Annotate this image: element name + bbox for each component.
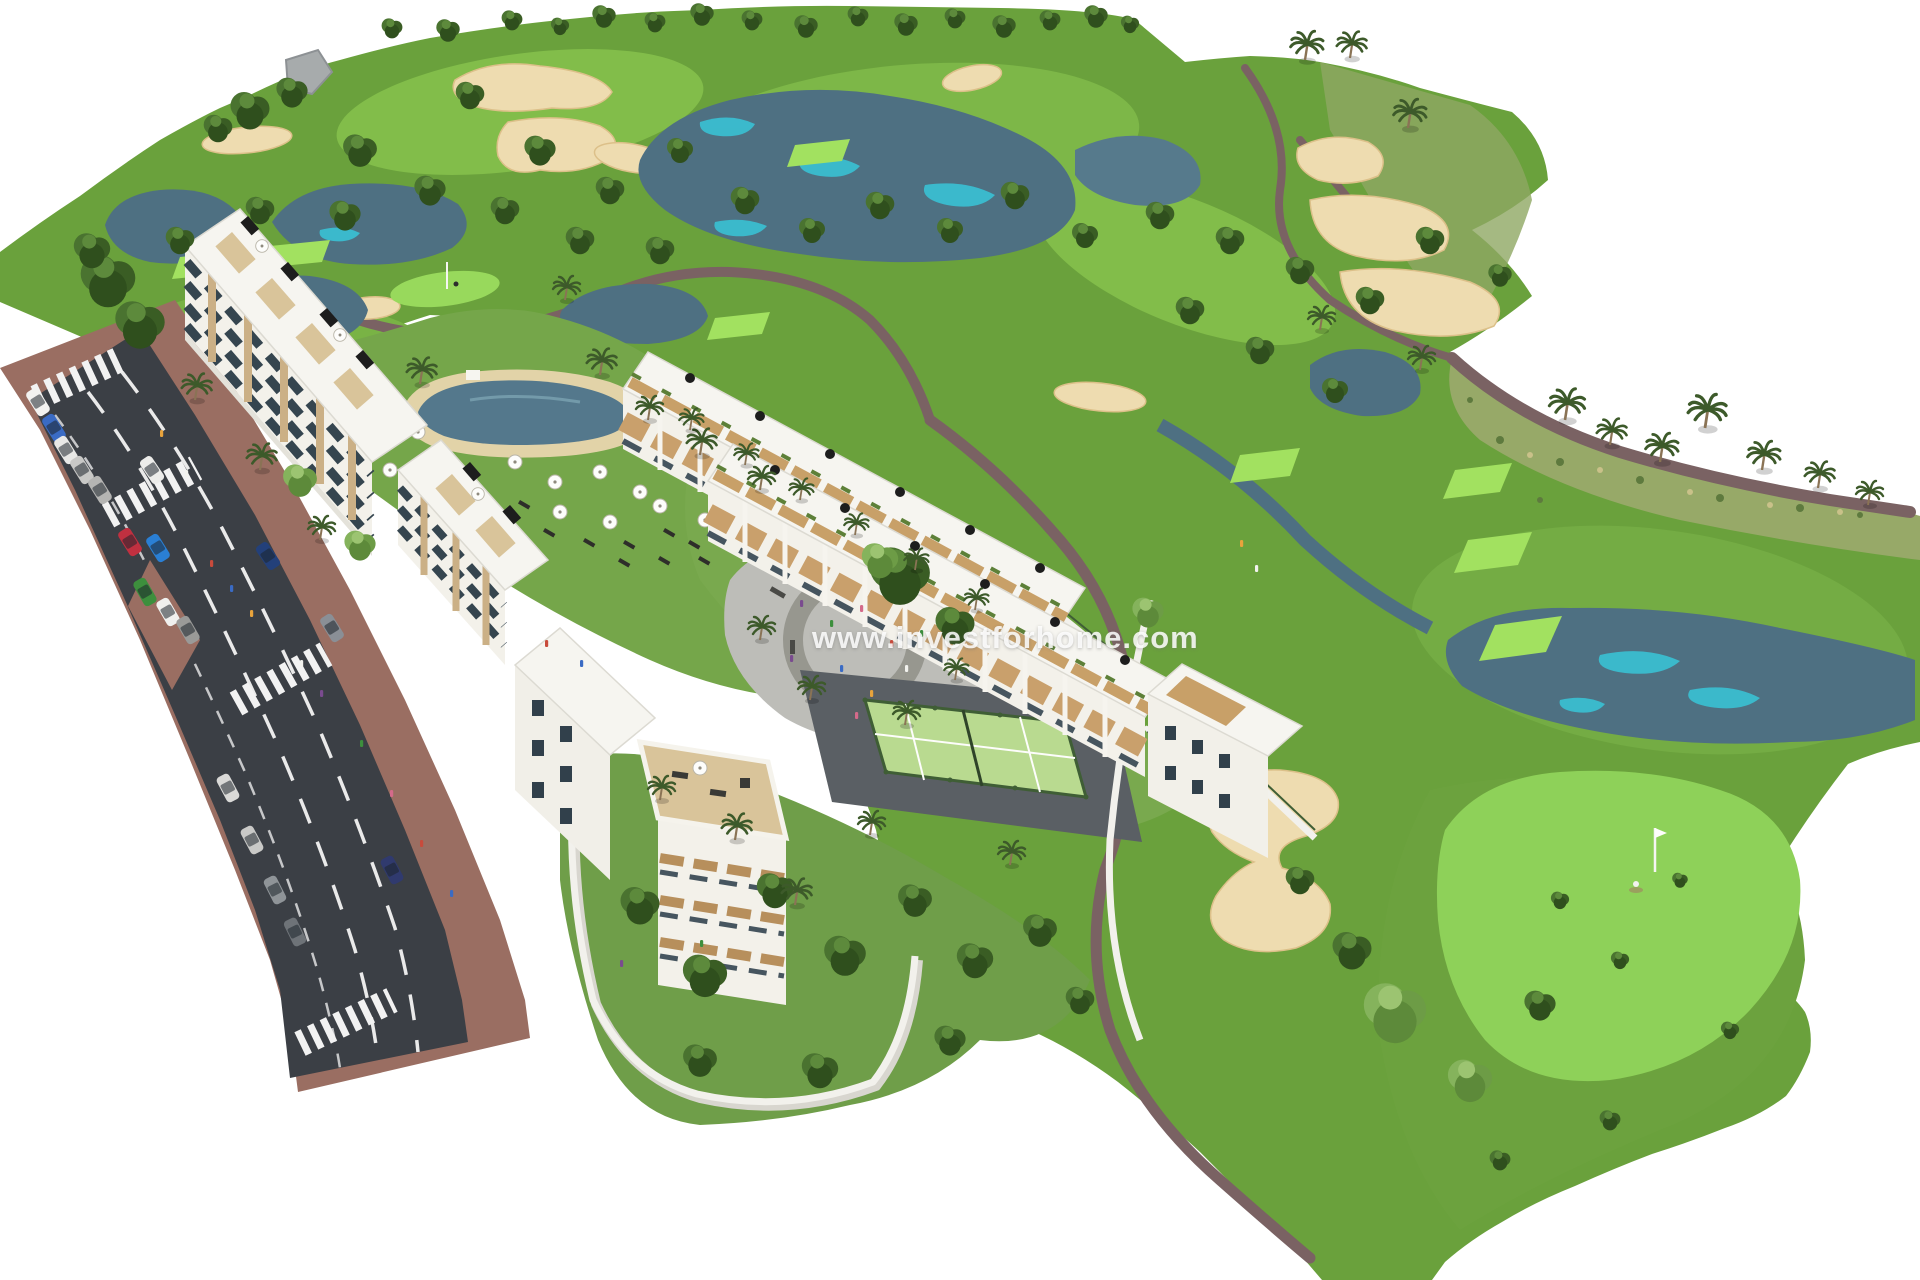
person-figure [580, 660, 583, 667]
tree [382, 18, 403, 38]
person-figure [420, 840, 423, 847]
person-figure [790, 655, 793, 662]
parasol [508, 455, 522, 469]
parasol [603, 515, 617, 529]
person-figure [320, 690, 323, 697]
roof-parasol [334, 329, 347, 342]
person-figure [870, 690, 873, 697]
person-figure [800, 600, 803, 607]
palm-tree [1748, 441, 1780, 475]
parasol [653, 499, 667, 513]
parasol [383, 463, 397, 477]
person-figure [185, 470, 188, 477]
parasol [633, 485, 647, 499]
person-figure [1240, 540, 1243, 547]
palm-tree [1805, 462, 1835, 493]
parasol [593, 465, 607, 479]
person-figure [840, 665, 843, 672]
person-figure [905, 665, 908, 672]
watermark-text: www.investforhome.com [812, 620, 1199, 656]
person-figure [230, 585, 233, 592]
person-figure [860, 605, 863, 612]
roof-parasol [472, 488, 485, 501]
golfer-figure-2 [1633, 881, 1639, 887]
person-figure [620, 960, 623, 967]
person-figure [300, 660, 303, 667]
person-figure [545, 640, 548, 647]
golfer-figure [454, 282, 459, 287]
pool-feature [466, 370, 480, 380]
palm-tree [1688, 394, 1726, 433]
person-figure [360, 740, 363, 747]
render-canvas: Aerial 3D render of a golf resort reside… [0, 0, 1920, 1280]
person-figure [390, 790, 393, 797]
person-figure [450, 890, 453, 897]
person-figure [210, 560, 213, 567]
person-figure [1255, 565, 1258, 572]
parasol [548, 475, 562, 489]
person-figure [855, 712, 858, 719]
person-figure [160, 430, 163, 437]
parasol [553, 505, 567, 519]
person-figure [250, 610, 253, 617]
roof-parasol [256, 240, 269, 253]
palm-tree [1337, 32, 1367, 63]
person-figure [700, 940, 703, 947]
